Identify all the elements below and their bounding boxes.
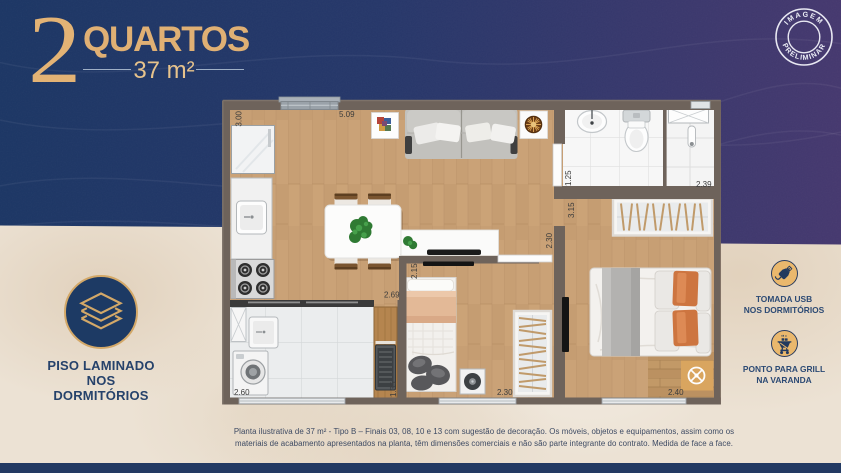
svg-text:2.30: 2.30 <box>497 388 513 397</box>
svg-text:2.40: 2.40 <box>668 388 684 397</box>
svg-text:3.00: 3.00 <box>235 110 244 126</box>
svg-text:2.69: 2.69 <box>384 291 400 300</box>
svg-text:2.60: 2.60 <box>234 388 250 397</box>
svg-text:2.30: 2.30 <box>545 232 554 248</box>
svg-text:3.15: 3.15 <box>567 202 576 218</box>
svg-text:2.39: 2.39 <box>696 180 712 189</box>
svg-text:1.25: 1.25 <box>564 170 573 186</box>
svg-text:1.35: 1.35 <box>389 381 398 397</box>
svg-text:5.09: 5.09 <box>339 110 355 119</box>
svg-text:2.15: 2.15 <box>410 263 419 279</box>
